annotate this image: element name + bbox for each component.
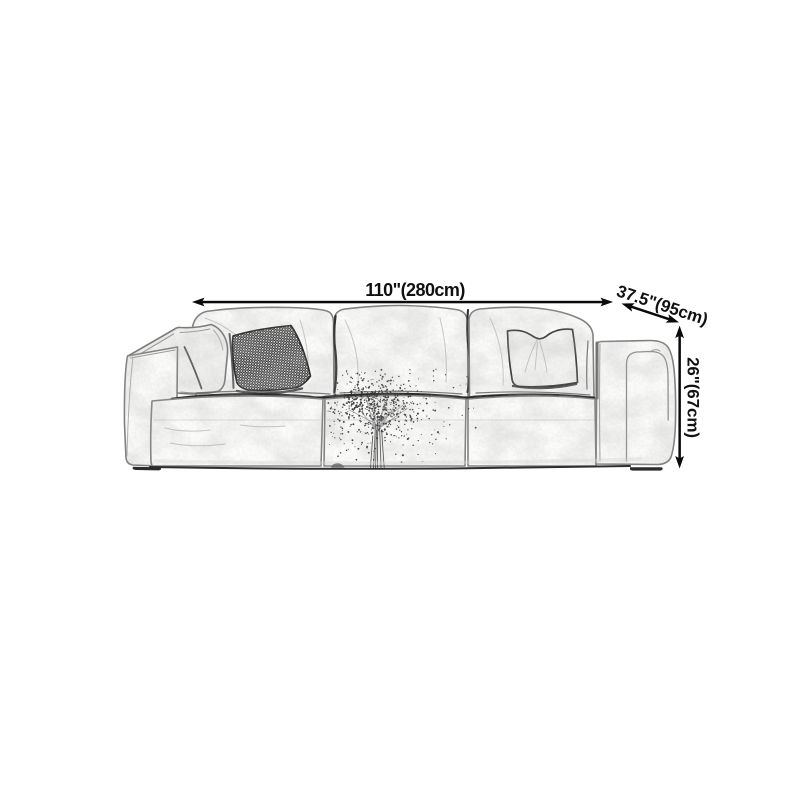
svg-text:110"(280cm): 110"(280cm) (365, 280, 465, 300)
svg-text:26"(67cm): 26"(67cm) (684, 357, 703, 438)
